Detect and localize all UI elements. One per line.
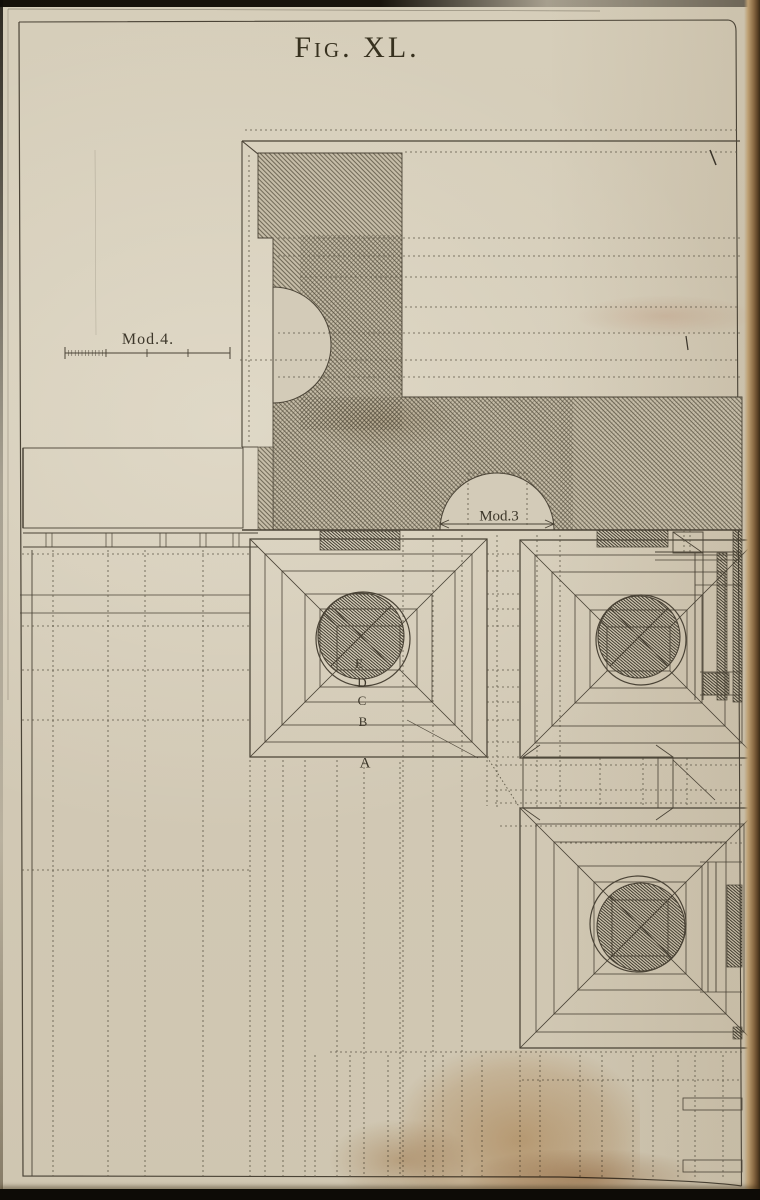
projection-diagonal [407,720,478,758]
wall-crosshatch [560,397,742,530]
pilaster-base-band [683,1098,742,1110]
scan-edge-left [0,0,3,1200]
book-page-edge [744,0,760,1200]
plate-border-outer [8,9,600,11]
wall-dado-hatched [320,531,400,550]
connector-mitre [656,808,673,820]
left-wall-block [23,448,243,528]
wall-plan-hatched [258,447,273,530]
paper-crease [95,150,96,335]
dimension-label: Mod.3 [479,509,519,526]
pedestal-bottom-right-corner-diagonal [520,808,612,900]
pilaster-hatched [727,885,742,967]
pilaster-corner-diagonal [673,532,703,553]
pilaster-hatched [703,673,729,695]
projection-diagonal [673,760,715,800]
pedestal-top-right-corner-diagonal [520,540,607,627]
pedestal-top-left-corner-diagonal [400,539,487,626]
step-label-e: E [355,656,363,672]
wall-outline [242,141,258,154]
pedestal-top-right-corner-diagonal [520,671,607,758]
figure-title: Fig. XL. [294,31,419,65]
connector-mitre [656,745,673,757]
step-label-a: A [360,756,371,773]
pedestal-top-left-corner-diagonal [250,670,337,757]
step-label-d: D [357,675,366,691]
linework-layer [8,9,760,1186]
step-label-b: B [359,714,368,730]
scan-edge-bottom [0,1189,760,1200]
pedestal-bottom-right-corner-diagonal [520,956,612,1048]
ink-fleck [686,336,688,350]
wall-dado-hatched [597,530,668,547]
step-label-c: C [358,693,367,709]
architectural-plan-drawing [0,0,760,1200]
pedestal-top-left-corner-diagonal [400,670,487,757]
pilaster-hatched [733,1027,742,1039]
pilaster-hatched [733,530,742,702]
scan-edge-top [0,0,760,7]
scale-bar-label: Mod.4. [122,331,174,349]
pilaster-base-band [683,1160,742,1172]
engraving-plate: Fig. XL. Mod.4. Mod.3 A B C D E [0,0,760,1200]
